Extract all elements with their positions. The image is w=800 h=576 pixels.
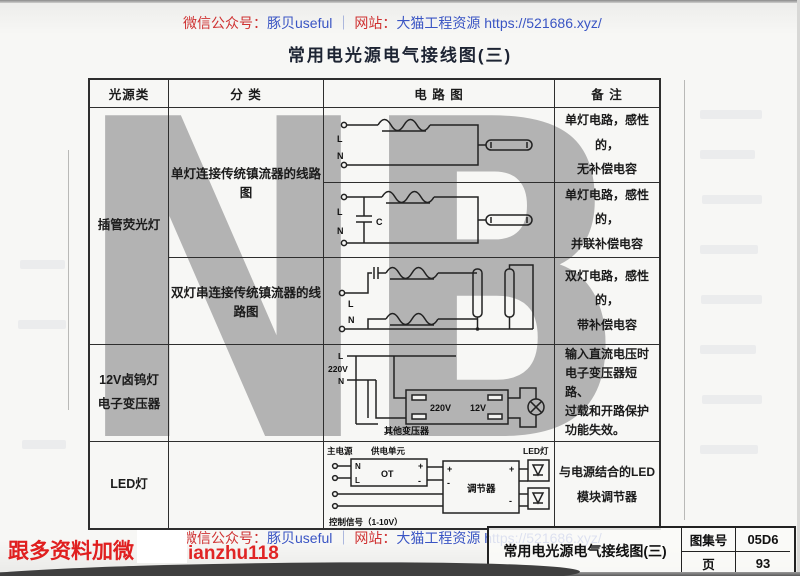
circuit-led-driver: 主电源 供电单元 LED灯 N L OT + - + - — [324, 441, 555, 529]
table-header-row: 光源类 分 类 电 路 图 备 注 — [89, 79, 660, 108]
promo-header-line: 微信公众号：豚贝useful｜网站：大猫工程资源 https://521686.… — [183, 13, 602, 33]
bleed-mark — [701, 295, 762, 304]
fluorescent-tube-icon — [505, 269, 514, 317]
atlas-number-label: 图集号 — [682, 528, 736, 551]
bleed-mark — [700, 345, 756, 354]
footer-wechat-id: ianzhu118 — [188, 543, 279, 565]
page-title: 常用电光源电气接线图(三) — [0, 41, 800, 66]
separator: ｜ — [332, 15, 354, 31]
primary-voltage-label: 220V — [430, 403, 451, 413]
page-fold-line — [68, 150, 69, 410]
note-cell-5: 与电源结合的LED 模块调节器 — [555, 441, 661, 529]
page-top-edge — [0, 0, 800, 3]
bleed-mark — [702, 195, 762, 204]
footer-promo-text: 跟多资料加微 — [8, 535, 134, 565]
line-l-label: L — [338, 351, 343, 361]
source-fluorescent: 插管荧光灯 — [89, 108, 169, 345]
bleed-mark — [700, 445, 758, 454]
source-led: LED灯 — [89, 441, 169, 529]
page-number-value: 93 — [736, 551, 790, 574]
led-lamp-label: LED灯 — [523, 446, 549, 456]
terminal-n-label: N — [337, 151, 344, 161]
svg-text:-: - — [509, 496, 512, 506]
fluorescent-tube-icon — [486, 140, 532, 150]
bleed-mark — [700, 110, 762, 119]
terminal-l-label: L — [348, 299, 354, 309]
ballast-coil-icon — [386, 313, 438, 324]
wechat-label: 微信公众号： — [183, 15, 267, 31]
bleed-mark — [20, 260, 65, 269]
circuit-electronic-transformer: L 220V N 220V 12V — [324, 344, 555, 441]
circuit-diagram-5: 主电源 供电单元 LED灯 N L OT + - + - — [325, 442, 553, 528]
table-row: 12V卤钨灯 电子变压器 L 220V N 220V 1 — [89, 344, 660, 441]
note-cell-2: 单灯电路，感性的， 并联补偿电容 — [555, 182, 661, 257]
site-label: 网站： — [354, 15, 396, 31]
circuit-diagram-1: L N — [330, 115, 548, 175]
ballast-coil-icon — [378, 119, 430, 130]
bleed-mark — [700, 245, 758, 254]
circuit-single-with-cap: L N C — [324, 182, 555, 257]
redaction-box — [137, 530, 187, 563]
unit-l-label: L — [355, 476, 360, 485]
mains-label: 主电源 — [327, 446, 353, 456]
svg-text:+: + — [447, 464, 452, 474]
circuit-diagram-2: L N C — [330, 188, 548, 252]
circuit-double-lamp: L N — [324, 257, 555, 344]
bleed-mark — [18, 320, 66, 329]
ballast-coil-icon — [386, 267, 438, 278]
separator: ｜ — [332, 530, 354, 546]
led-module-icon — [528, 488, 549, 509]
class-single-lamp: 单灯连接传统镇流器的线路图 — [169, 108, 324, 258]
line-n-label: N — [338, 376, 344, 386]
site-url[interactable]: https://521686.xyz/ — [484, 15, 602, 31]
col-header-source: 光源类 — [89, 79, 169, 108]
svg-text:-: - — [447, 478, 450, 488]
atlas-number-value: 05D6 — [736, 528, 790, 551]
regulator-label: 调节器 — [467, 483, 496, 495]
control-signal-label: 控制信号（1-10V） — [329, 517, 403, 527]
other-transformers-label: 其他变压器 — [384, 425, 430, 436]
wechat-account: 豚贝useful — [267, 15, 332, 31]
circuit-single-no-cap: L N — [324, 108, 555, 183]
circuit-diagram-4: L 220V N 220V 12V — [326, 348, 552, 438]
wiring-diagram-table: 光源类 分 类 电 路 图 备 注 插管荧光灯 单灯连接传统镇流器的线路图 L … — [88, 78, 661, 530]
svg-text:+: + — [509, 464, 514, 474]
table-row: 双灯串连接传统镇流器的线路图 L N — [89, 257, 660, 344]
terminal-l-label: L — [337, 134, 343, 144]
site-name: 大猫工程资源 — [396, 15, 480, 31]
ballast-coil-icon — [382, 191, 434, 202]
col-header-circuit: 电 路 图 — [324, 79, 555, 108]
terminal-n-label: N — [337, 226, 344, 236]
source-halogen-transformer: 12V卤钨灯 电子变压器 — [89, 344, 169, 441]
circuit-diagram-3: L N — [328, 261, 550, 341]
led-module-icon — [528, 460, 549, 481]
note-cell-4: 输入直流电压时 电子变压器短路、 过载和开路保护 功能失效。 — [555, 344, 661, 441]
class-empty-cell — [169, 441, 324, 529]
class-empty-cell — [169, 344, 324, 441]
site-name: 大猫工程资源 — [396, 530, 480, 546]
capacitor-label: C — [376, 217, 383, 227]
col-header-class: 分 类 — [169, 79, 324, 108]
bleed-mark — [700, 150, 755, 159]
unit-minus-label: - — [418, 476, 421, 486]
line-220v-label: 220V — [328, 364, 348, 374]
unit-plus-label: + — [418, 461, 423, 471]
bleed-mark — [22, 440, 66, 449]
fluorescent-tube-icon — [473, 269, 482, 317]
fluorescent-tube-icon — [486, 215, 532, 225]
col-header-note: 备 注 — [555, 79, 661, 108]
bleed-mark — [702, 395, 762, 404]
unit-n-label: N — [355, 462, 361, 471]
class-double-lamp: 双灯串连接传统镇流器的线路图 — [169, 257, 324, 344]
scanned-document-page: NB 微信公众号：豚贝useful｜网站：大猫工程资源 https://5216… — [0, 0, 800, 576]
site-label: 网站： — [354, 530, 396, 546]
unit-ot-label: OT — [381, 469, 394, 479]
supply-unit-label: 供电单元 — [370, 446, 406, 456]
page-number-label: 页 — [682, 551, 736, 574]
note-cell-1: 单灯电路，感性的， 无补偿电容 — [555, 108, 661, 183]
terminal-l-label: L — [337, 207, 343, 217]
table-row: LED灯 主电源 供电单元 LED灯 N L OT + - — [89, 441, 660, 529]
terminal-n-label: N — [348, 315, 355, 325]
note-cell-3: 双灯电路，感性的， 带补偿电容 — [555, 257, 661, 344]
margin-line — [684, 80, 685, 520]
table-row: 插管荧光灯 单灯连接传统镇流器的线路图 L N 单灯电路，感性的， 无补偿电容 — [89, 108, 660, 183]
secondary-voltage-label: 12V — [470, 403, 486, 413]
